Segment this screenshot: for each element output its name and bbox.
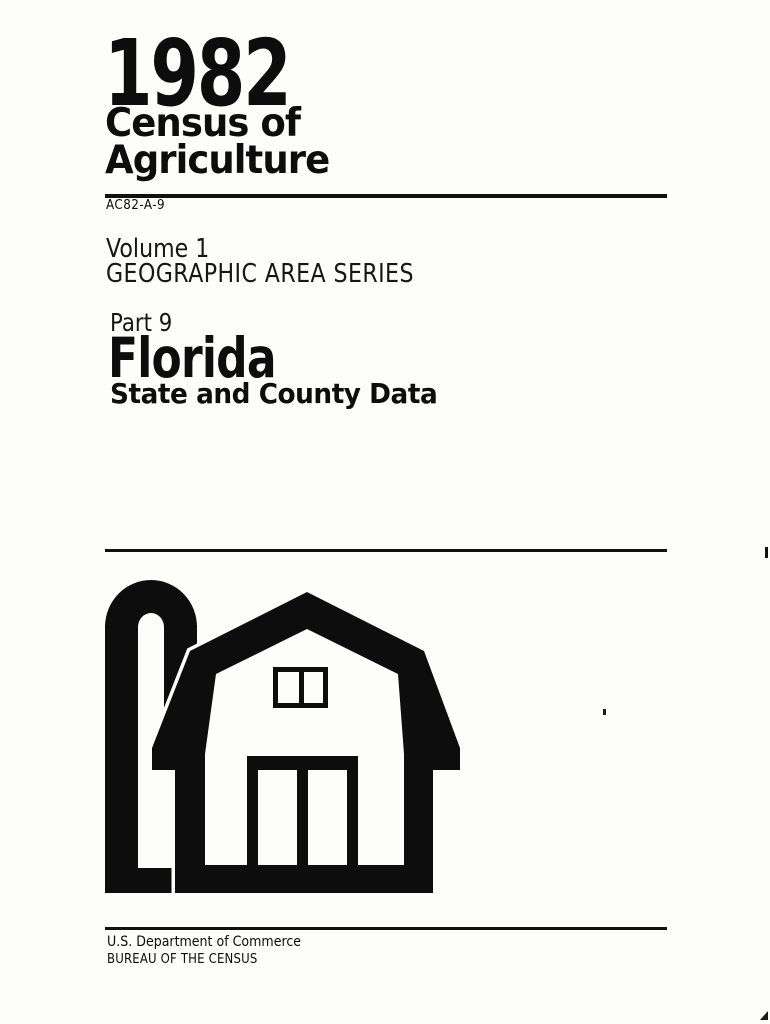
footer-bureau: BUREAU OF THE CENSUS: [107, 953, 274, 966]
cover-page: 1982 Census of Agriculture AC82-A-9 Volu…: [0, 0, 770, 1024]
scan-speck: [603, 709, 768, 1020]
barn-window: [273, 667, 328, 708]
footer-divider: [105, 927, 667, 930]
footer-department: U.S. Department of Commerce: [107, 935, 323, 949]
barn-icon: [152, 592, 460, 893]
barn-doors: [247, 756, 358, 865]
barn-and-silo-icon: [0, 0, 770, 1024]
